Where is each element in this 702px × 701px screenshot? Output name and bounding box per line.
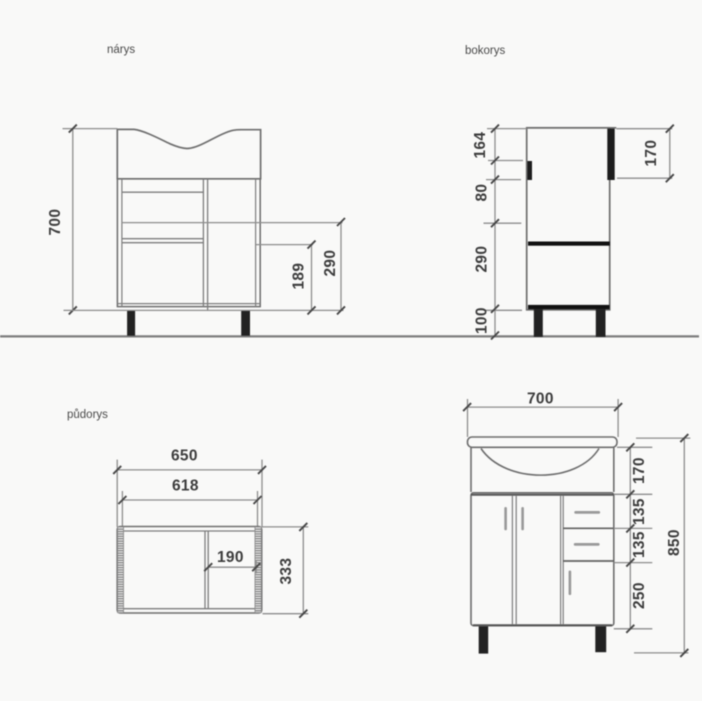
svg-text:nárys: nárys — [107, 44, 135, 56]
svg-text:650: 650 — [171, 448, 198, 465]
svg-text:700: 700 — [47, 209, 64, 236]
svg-text:170: 170 — [631, 457, 648, 484]
svg-text:850: 850 — [666, 529, 683, 556]
svg-text:700: 700 — [527, 391, 554, 408]
svg-text:290: 290 — [322, 250, 339, 277]
svg-text:250: 250 — [631, 582, 648, 609]
svg-text:80: 80 — [474, 184, 491, 202]
svg-text:333: 333 — [278, 558, 295, 585]
svg-text:100: 100 — [474, 307, 491, 334]
svg-text:půdorys: půdorys — [67, 409, 108, 421]
svg-text:618: 618 — [172, 478, 199, 495]
svg-text:164: 164 — [472, 132, 489, 159]
svg-text:135: 135 — [631, 498, 648, 525]
svg-text:290: 290 — [474, 246, 491, 273]
svg-text:135: 135 — [631, 531, 648, 558]
svg-text:190: 190 — [217, 549, 244, 566]
svg-text:170: 170 — [643, 140, 660, 167]
svg-text:bokorys: bokorys — [465, 45, 506, 57]
svg-text:189: 189 — [291, 263, 308, 290]
